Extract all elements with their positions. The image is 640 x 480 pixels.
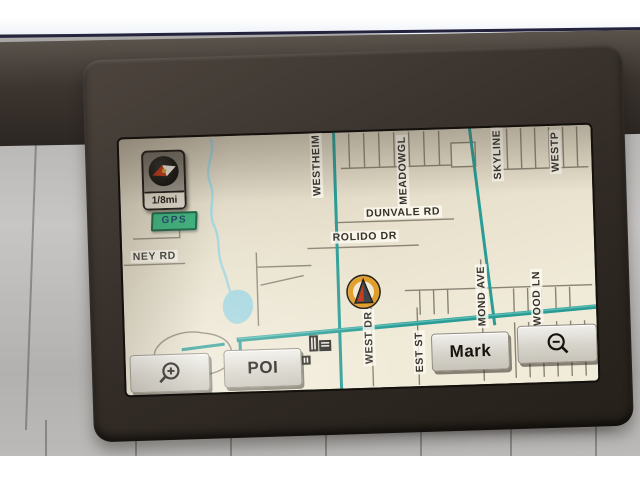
street-label-wood-ln: WOOD LN — [530, 269, 544, 328]
compass-icon — [148, 156, 179, 187]
street-label-richmond-ave: MOND AVE — [475, 264, 489, 329]
current-position-marker — [347, 275, 381, 309]
magnifier-plus-icon — [157, 360, 184, 387]
street-label-westpark: WESTP — [549, 129, 562, 174]
zoom-in-button[interactable] — [129, 353, 210, 393]
car-dashboard-photo: NEY RD DUNVALE RD ROLIDO DR WESTHEIM MEA… — [0, 0, 640, 480]
map-scale-label: 1/8mi — [144, 190, 185, 208]
street-label-rolido-dr: ROLIDO DR — [330, 230, 399, 244]
buildings-icon — [301, 335, 332, 365]
street-label-meadowglen: MEADOWGL — [396, 134, 410, 207]
compass-scale-widget[interactable]: 1/8mi — [141, 149, 187, 210]
street-label-ney-rd: NEY RD — [131, 250, 178, 263]
street-label-skyline: SKYLINE — [490, 128, 504, 182]
creek — [207, 137, 254, 324]
street-label-west-st: EST ST — [413, 330, 426, 375]
mark-button[interactable]: Mark — [431, 331, 510, 371]
street-label-dunvale-rd: DUNVALE RD — [364, 205, 442, 219]
zoom-out-button[interactable] — [517, 324, 598, 364]
street-label-westheimer: WESTHEIM — [310, 132, 324, 198]
street-label-west-dr: WEST DR — [362, 309, 376, 366]
poi-button[interactable]: POI — [223, 348, 302, 388]
pond — [222, 289, 253, 324]
photo-bottom-border — [0, 456, 640, 480]
dash-seam — [45, 420, 47, 456]
nav-touchscreen[interactable]: NEY RD DUNVALE RD ROLIDO DR WESTHEIM MEA… — [117, 123, 601, 398]
gps-status-badge: GPS — [151, 211, 198, 231]
magnifier-minus-icon — [544, 330, 571, 357]
nav-display-bezel: NEY RD DUNVALE RD ROLIDO DR WESTHEIM MEA… — [82, 44, 634, 443]
